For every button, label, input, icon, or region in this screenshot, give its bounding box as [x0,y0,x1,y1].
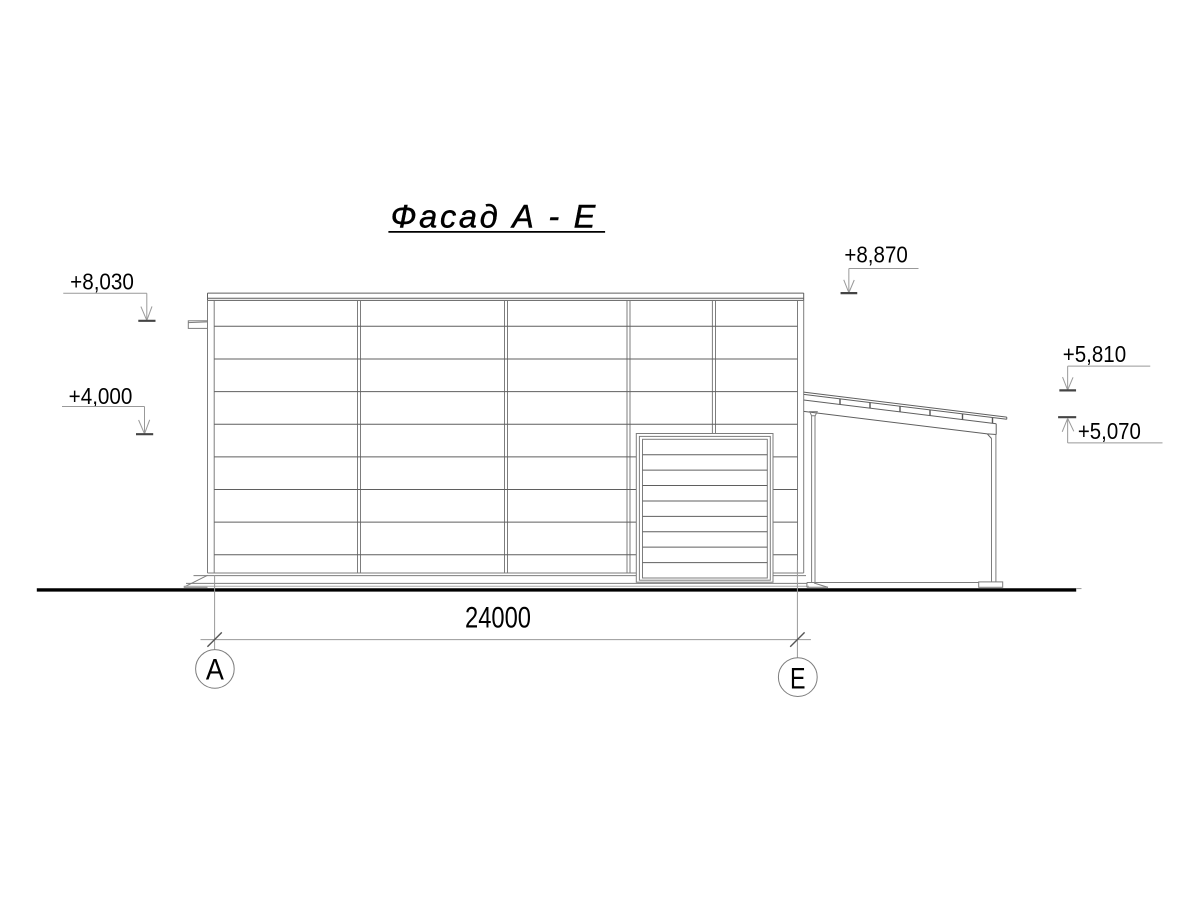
svg-text:24000: 24000 [465,602,531,635]
svg-text:+5,070: +5,070 [1078,418,1141,444]
svg-text:Е: Е [790,663,806,696]
svg-text:+5,810: +5,810 [1063,341,1126,367]
svg-text:Фасад А - Е: Фасад А - Е [391,198,596,234]
svg-text:+4,000: +4,000 [69,383,133,409]
svg-text:А: А [206,653,224,686]
svg-text:+8,030: +8,030 [70,268,134,294]
svg-text:+8,870: +8,870 [844,242,907,268]
